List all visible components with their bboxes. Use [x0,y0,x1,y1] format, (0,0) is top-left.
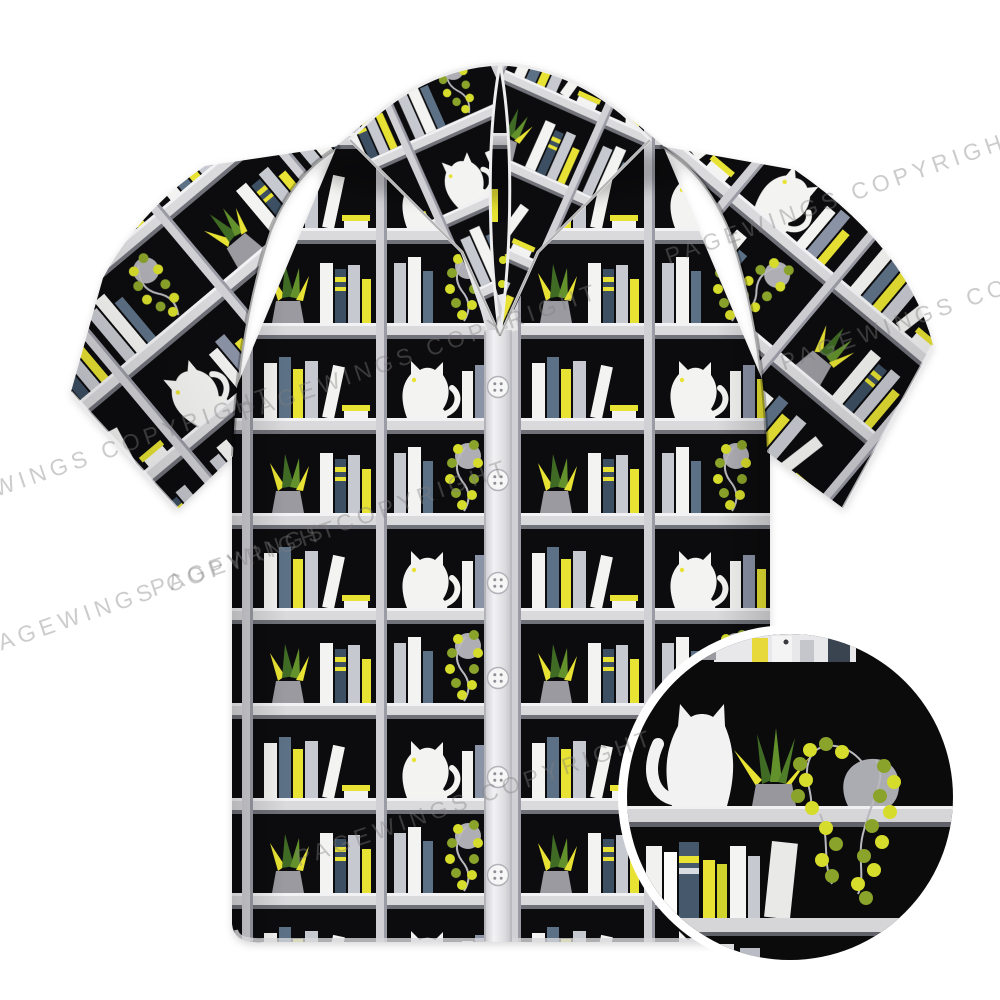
shirt-button [488,668,509,689]
shirt-button [488,377,509,398]
detail-inset [618,625,962,969]
product-photo: PAGEWINGS COPYRIGHT PAGEWINGS COPYRIGHT … [0,0,1000,1000]
shirt-button [488,865,509,886]
shirt-button [488,573,509,594]
inset-shelf [620,806,960,827]
shirt-button [488,767,509,788]
shirt-button [488,470,509,491]
button-placket [484,330,512,942]
shirt-graphic [0,0,1000,1000]
